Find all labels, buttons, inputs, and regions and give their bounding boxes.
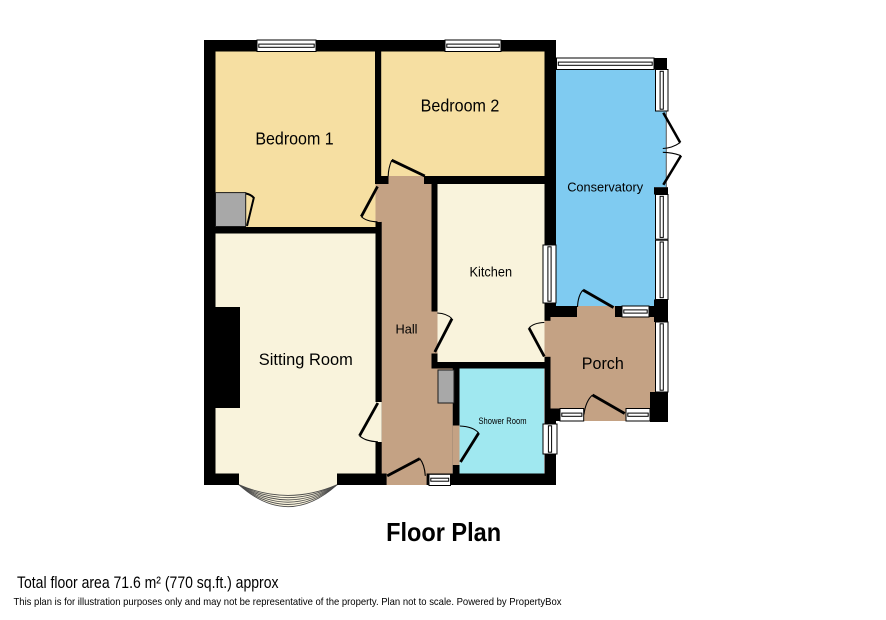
svg-text:This plan is for illustration: This plan is for illustration purposes o…: [14, 597, 562, 608]
svg-text:Bedroom 1: Bedroom 1: [255, 128, 333, 148]
svg-text:Floor Plan: Floor Plan: [386, 517, 501, 547]
svg-text:Sitting Room: Sitting Room: [259, 350, 353, 369]
svg-text:Kitchen: Kitchen: [470, 264, 513, 280]
svg-text:Conservatory: Conservatory: [567, 179, 643, 194]
svg-text:Shower Room: Shower Room: [479, 416, 527, 426]
svg-text:Porch: Porch: [582, 354, 624, 373]
svg-text:Hall: Hall: [396, 321, 418, 336]
svg-text:Bedroom 2: Bedroom 2: [421, 95, 500, 115]
svg-text:Total floor area 71.6 m² (770: Total floor area 71.6 m² (770 sq.ft.) ap…: [17, 573, 279, 592]
